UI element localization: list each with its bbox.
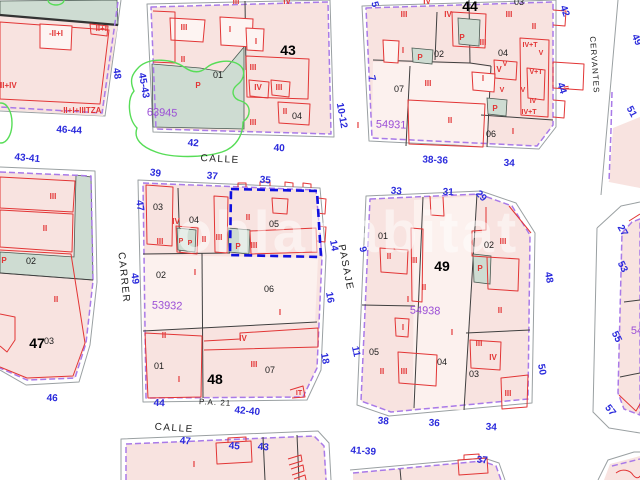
floor-label: -II+I+IIITZA [61,106,102,115]
floor-label: IV [172,217,180,226]
house-number: 44 [153,398,165,410]
house-number: 38-36 [422,154,449,166]
parcel-number: 02 [434,49,444,59]
floor-label: III [181,23,188,32]
mass-label: 53932 [152,299,183,312]
floor-label: I [193,460,195,469]
floor-label: III [401,367,408,376]
house-number: 37 [476,455,488,467]
street-name: CERVANTES [588,36,601,94]
floor-label: P [188,240,193,247]
floor-label: -II+I [49,29,63,38]
floor-label: -II+I [93,24,107,33]
floor-label: I [279,308,281,317]
floor-label: IV [444,10,452,19]
floor-label: IV [239,334,247,343]
floor-label: III [506,10,513,19]
floor-label: III [411,256,418,265]
block-number: 49 [434,258,450,274]
parcel-number: 04 [437,357,447,367]
floor-label: III [425,79,432,88]
house-number: 42-40 [234,405,261,418]
floor-label: II [448,116,452,125]
parcel-number: 05 [269,219,279,229]
floor-label: II [283,107,287,116]
parcel-box [383,40,399,63]
floor-label: V [539,50,544,57]
floor-label: III [476,339,483,348]
house-number: 36 [428,418,440,430]
house-number: 38 [377,416,389,428]
house-number: 34 [503,158,515,170]
floor-label: P [459,33,465,42]
cadastral-map[interactable]: ohlahabitat4846-4443-4145-43424010-12574… [0,0,640,480]
floor-label: V+T [529,69,543,76]
parcel-number: 04 [189,215,199,225]
parcel-number: 07 [394,84,404,94]
floor-label: P [179,238,184,245]
block-right-wedge[interactable] [609,117,640,188]
house-number: 46-44 [56,124,83,136]
floor-label: IV [423,0,431,6]
mass-label: 54931 [376,118,407,131]
floor-label: III [50,192,57,201]
floor-label: III [480,38,487,47]
floor-label: I [402,323,404,332]
floor-label: IV [489,353,497,362]
floor-label: IV+T [522,109,538,116]
parcel-number: 01 [213,70,223,80]
floor-label: V [503,61,508,68]
house-number: 47 [133,199,146,212]
house-number: 50 [535,363,548,376]
parcel-fill [143,255,318,331]
parcel-number: 02 [26,256,36,266]
street-name: CARRER [115,252,131,304]
floor-label: II [162,331,166,340]
house-number: 43-41 [14,152,41,165]
floor-label: III [505,389,512,398]
floor-label: III [250,118,257,127]
mass-label: 63945 [147,106,178,119]
floor-label: -II+IV [0,81,17,90]
floor-label: I [357,121,359,130]
parcel-number: 06 [264,284,274,294]
house-number: 16 [323,291,336,304]
block-number: 47 [29,335,45,351]
floor-label: V [496,65,502,74]
floor-label: III [251,360,258,369]
floor-label: III [401,10,408,19]
house-number: 31 [442,187,454,199]
house-number: 39 [149,167,162,180]
parcel-number: 04 [292,111,302,121]
floor-label: II [43,224,47,233]
house-number: 33 [390,186,402,198]
house-number: 48 [110,67,123,80]
parcel-number: 05 [369,347,379,357]
house-number: 41-39 [350,445,377,458]
house-number: 46 [46,393,58,405]
parcel-number: 06 [486,129,496,139]
floor-label: III [157,237,164,246]
floor-label: V [500,87,505,94]
house-number: 34 [485,422,497,434]
parcel-number: 03 [514,0,524,7]
parcel-line [553,100,565,118]
house-number: 47 [179,436,191,448]
house-number: 42 [187,138,199,150]
floor-label: I [451,328,453,337]
floor-label: III [233,0,240,6]
floor-label: I [255,37,257,46]
floor-label: II [532,22,536,31]
floor-label: I [482,74,484,83]
block-number: 48 [207,371,223,387]
parcel-number: 02 [156,270,166,280]
floor-label: I [512,127,514,136]
floor-label: I [178,375,180,384]
mass-label: 54 [631,325,640,337]
floor-label: P [417,53,423,62]
house-number: 37 [206,171,218,183]
floor-label: P [1,256,7,265]
floor-label: II [54,295,58,304]
floor-label: II [498,306,502,315]
floor-label: I [407,295,409,304]
floor-label: III [216,233,223,242]
floor-label: III [276,83,283,92]
block-number: 43 [280,42,296,58]
mass-label: 54938 [410,304,441,317]
house-number: 45 [228,441,240,453]
floor-label: P [477,264,483,273]
floor-label: I [229,25,231,34]
house-number: 35 [259,175,271,187]
floor-label: IV [254,83,262,92]
floor-label: V [521,87,526,94]
house-number: 11 [349,345,362,358]
floor-label: II [246,213,250,222]
parcel-number: 04 [498,48,508,58]
house-number: 48 [542,271,555,284]
floor-label: II [422,283,426,292]
house-number: 57 [602,403,618,419]
parcel-number: 02 [484,240,494,250]
floor-label: IT [296,390,303,397]
parcel-number: 01 [378,231,388,241]
floor-label: III [251,241,258,250]
floor-label: II [202,235,206,244]
floor-label: II [380,367,384,376]
parcel-number: 03 [44,336,54,346]
floor-label: IV+T [523,42,539,49]
floor-label: P [195,81,201,90]
parcel-number: 07 [265,365,275,375]
house-number: 51 [624,104,639,119]
block-number: 44 [462,0,478,14]
house-number: 10-12 [334,102,349,130]
floor-label: IV [283,0,291,6]
parcel-number: 03 [469,369,479,379]
floor-label: II [181,55,185,64]
street-name: CALLE [200,153,240,166]
map-viewport[interactable]: ohlahabitat4846-4443-4145-43424010-12574… [0,0,640,480]
house-number: 18 [318,352,331,365]
floor-label: P [492,104,498,113]
parcel-number: 01 [154,361,164,371]
house-number: 43 [257,442,269,454]
house-number: 40 [273,143,285,155]
floor-label: IV [530,98,537,105]
floor-label: I [402,46,404,55]
house-number: 45-43 [136,72,151,100]
floor-label: II [387,252,391,261]
floor-label: P [235,242,241,251]
street-name: P.A. 21 [199,397,232,408]
floor-label: I [194,268,196,277]
house-number: 42 [557,4,571,19]
floor-label: III [250,63,257,72]
parcel-number: 03 [153,202,163,212]
floor-label: III [500,237,507,246]
house-number: 49 [629,33,640,48]
street-name: CALLE [154,422,194,436]
